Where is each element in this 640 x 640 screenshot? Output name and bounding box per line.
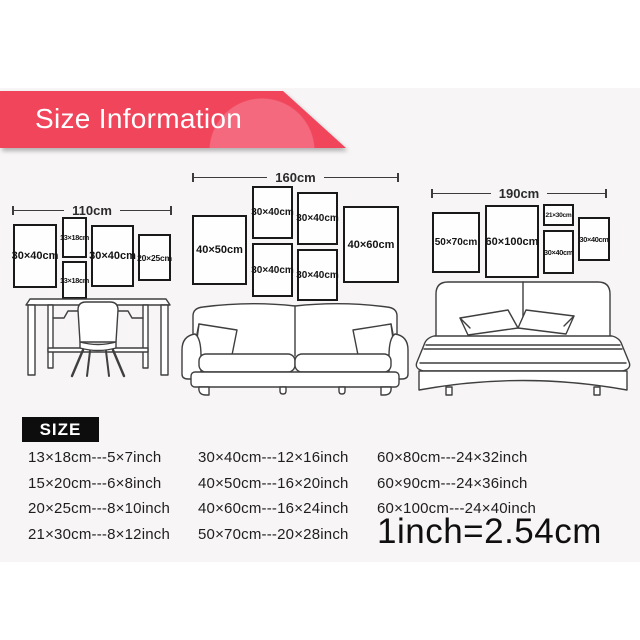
- frame-30x40: 30×40cm: [252, 186, 293, 239]
- frame-60x100: 60×100cm: [485, 205, 539, 278]
- conversion-row: 15×20cm---6×8inch: [28, 471, 170, 497]
- ruler-line: [547, 193, 605, 195]
- ruler-tick: [605, 189, 607, 198]
- ruler-190cm: 190cm: [431, 187, 607, 200]
- ruler-tick: [170, 206, 172, 215]
- conversion-row: 13×18cm---5×7inch: [28, 445, 170, 471]
- ruler-tick: [397, 173, 399, 182]
- ruler-label: 160cm: [267, 170, 323, 185]
- banner-title: Size Information: [0, 91, 346, 147]
- bed-illustration: [408, 278, 638, 398]
- conversion-row: 50×70cm---20×28inch: [198, 522, 349, 548]
- frame-50x70: 50×70cm: [432, 212, 480, 273]
- frame-13x18: 13×18cm: [62, 261, 87, 299]
- frame-40x50: 40×50cm: [192, 215, 247, 285]
- frame-40x60: 40×60cm: [343, 206, 399, 283]
- frame-30x40: 30×40cm: [297, 192, 338, 245]
- ruler-line: [324, 177, 397, 179]
- conversion-row: 60×80cm---24×32inch: [377, 445, 536, 471]
- frame-30x40: 30×40cm: [13, 224, 57, 288]
- conversion-row: 60×90cm---24×36inch: [377, 471, 536, 497]
- ruler-160cm: 160cm: [192, 171, 399, 184]
- conversion-column-2: 30×40cm---12×16inch 40×50cm---16×20inch …: [198, 445, 349, 548]
- conversion-column-1: 13×18cm---5×7inch 15×20cm---6×8inch 20×2…: [28, 445, 170, 548]
- frame-13x18: 13×18cm: [62, 217, 87, 258]
- ruler-line: [14, 210, 64, 212]
- conversion-column-3: 60×80cm---24×32inch 60×90cm---24×36inch …: [377, 445, 536, 522]
- frame-30x40: 30×40cm: [91, 225, 134, 287]
- size-section-heading: SIZE: [22, 417, 99, 442]
- frame-30x40: 30×40cm: [297, 249, 338, 301]
- frame-20x25: 20×25cm: [138, 234, 171, 281]
- sofa-illustration: [179, 298, 411, 396]
- desk-and-chair-illustration: [24, 296, 172, 378]
- banner-ribbon-shape: Size Information: [0, 91, 346, 148]
- conversion-row: 30×40cm---12×16inch: [198, 445, 349, 471]
- ruler-line: [433, 193, 491, 195]
- ruler-label: 110cm: [64, 203, 120, 218]
- frame-30x40: 30×40cm: [578, 217, 610, 261]
- ruler-line: [120, 210, 170, 212]
- ruler-line: [194, 177, 267, 179]
- conversion-row: 20×25cm---8×10inch: [28, 496, 170, 522]
- inch-cm-conversion-note: 1inch=2.54cm: [377, 512, 602, 552]
- frame-30x40: 30×40cm: [543, 230, 574, 274]
- conversion-row: 21×30cm---8×12inch: [28, 522, 170, 548]
- ruler-110cm: 110cm: [12, 204, 172, 217]
- frame-30x40: 30×40cm: [252, 243, 293, 297]
- conversion-row: 40×60cm---16×24inch: [198, 496, 349, 522]
- ruler-label: 190cm: [491, 186, 547, 201]
- conversion-row: 40×50cm---16×20inch: [198, 471, 349, 497]
- size-information-banner: Size Information: [0, 91, 346, 148]
- frame-21x30: 21×30cm: [543, 204, 574, 226]
